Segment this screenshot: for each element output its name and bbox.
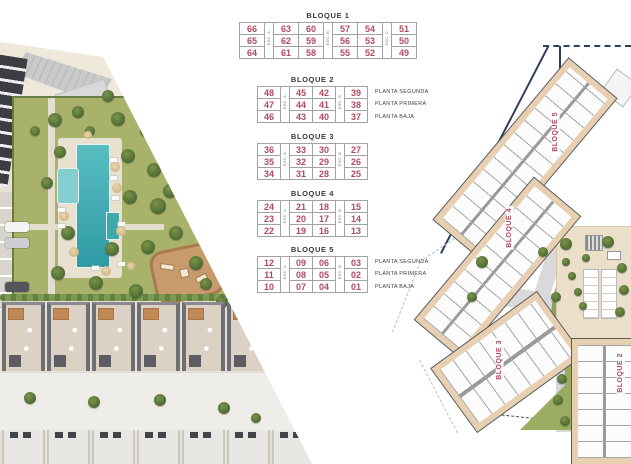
- unit-number-table: 66ESC. A6360ESC. B5754ESC. C516562595653…: [239, 22, 417, 59]
- unit-number-cell: 14: [345, 213, 368, 225]
- parasol-icon: [101, 266, 111, 276]
- palm-tree-icon: [111, 112, 125, 126]
- palm-tree-icon: [189, 256, 203, 270]
- unit-number-cell: 24: [258, 201, 281, 213]
- bloque-block-5: BLOQUE 512ESC. A0906ESC. B03110805021007…: [257, 245, 429, 293]
- sun-lounger: [58, 224, 65, 228]
- unit-number-cell: 04: [313, 281, 336, 293]
- palm-tree-icon: [163, 184, 177, 198]
- townhouse-roof: [2, 430, 45, 464]
- sun-lounger: [110, 158, 117, 162]
- townhouse-roof-terrace: [182, 302, 225, 371]
- car: [5, 282, 29, 292]
- unit-number-cell: 07: [290, 281, 313, 293]
- unit-number-cell: 19: [290, 225, 313, 237]
- planta-label: PLANTA SEGUNDA: [375, 89, 429, 95]
- unit-number-cell: 20: [290, 213, 313, 225]
- palm-tree-icon: [51, 266, 65, 280]
- unit-number-cell: 12: [258, 257, 281, 269]
- unit-number-cell: 22: [258, 225, 281, 237]
- car: [5, 238, 29, 248]
- tree-icon: [602, 236, 614, 248]
- sun-lounger: [112, 196, 119, 200]
- unit-number-cell: 17: [313, 213, 336, 225]
- sun-lounger: [92, 266, 99, 270]
- unit-number-cell: 51: [392, 23, 417, 35]
- palm-tree-icon: [54, 146, 66, 158]
- townhouse-roof: [92, 430, 135, 464]
- sun-lounger: [118, 262, 125, 266]
- unit-number-cell: 59: [299, 35, 324, 47]
- unit-number-cell: 16: [313, 225, 336, 237]
- palm-tree-icon: [141, 240, 155, 254]
- plan-label-bloque-3: BLOQUE 3: [496, 338, 504, 382]
- unit-number-cell: 01: [345, 281, 368, 293]
- townhouse-roof: [227, 430, 270, 464]
- tree-icon: [538, 247, 548, 257]
- unit-number-cell: 41: [313, 99, 336, 111]
- site-boundary-dashed: [543, 45, 631, 47]
- palm-tree-icon: [140, 125, 152, 137]
- palm-tree-icon: [88, 396, 100, 408]
- palm-tree-icon: [166, 142, 178, 154]
- unit-number-table: 24ESC. A2118ESC. B152320171422191613: [257, 200, 368, 237]
- sun-lounger: [58, 208, 65, 212]
- tree-icon: [562, 258, 570, 266]
- townhouse-roof-terrace: [92, 302, 135, 371]
- unit-number-table: 36ESC. A3330ESC. B273532292634312825: [257, 143, 368, 180]
- tree-icon: [568, 272, 576, 280]
- unit-number-table: 48ESC. A4542ESC. B394744413846434037: [257, 86, 368, 123]
- unit-number-cell: 55: [333, 47, 358, 59]
- unit-number-cell: 26: [345, 156, 368, 168]
- play-equipment: [161, 264, 173, 270]
- palm-tree-icon: [129, 284, 143, 298]
- planta-label: PLANTA PRIMERA: [375, 271, 429, 277]
- tree-icon: [617, 263, 627, 273]
- unit-number-cell: 31: [290, 168, 313, 180]
- tree-icon: [574, 288, 582, 296]
- unit-number-cell: 57: [333, 23, 358, 35]
- bloque-title: BLOQUE 1: [306, 11, 349, 20]
- unit-number-cell: 09: [290, 257, 313, 269]
- planta-label: PLANTA BAJA: [375, 114, 429, 120]
- palm-tree-icon: [48, 113, 62, 127]
- palm-tree-icon: [24, 392, 36, 404]
- palm-tree-icon: [180, 147, 192, 159]
- unit-number-cell: 43: [290, 111, 313, 123]
- bloque-block-1: BLOQUE 166ESC. A6360ESC. B5754ESC. C5165…: [239, 11, 417, 59]
- tree-icon: [615, 307, 625, 317]
- unit-number-cell: 36: [258, 144, 281, 156]
- sun-lounger: [118, 222, 125, 226]
- staircase-label: ESC. B: [338, 152, 342, 166]
- unit-number-cell: 30: [313, 144, 336, 156]
- bloque-title: BLOQUE 5: [291, 245, 334, 254]
- unit-number-cell: 53: [358, 35, 383, 47]
- palm-tree-icon: [121, 149, 135, 163]
- unit-number-cell: 49: [392, 47, 417, 59]
- unit-number-cell: 52: [358, 47, 383, 59]
- parasol-icon: [59, 211, 69, 221]
- parasol-icon: [127, 262, 135, 270]
- unit-number-cell: 54: [358, 23, 383, 35]
- unit-number-cell: 40: [313, 111, 336, 123]
- bloque-block-4: BLOQUE 424ESC. A2118ESC. B15232017142219…: [257, 189, 368, 237]
- unit-number-cell: 21: [290, 201, 313, 213]
- unit-number-cell: 15: [345, 201, 368, 213]
- unit-number-cell: 34: [258, 168, 281, 180]
- palm-tree-icon: [150, 198, 166, 214]
- parasol-icon: [110, 162, 120, 172]
- staircase-label: ESC. B: [338, 209, 342, 223]
- townhouse-roof-terrace: [47, 302, 90, 371]
- palm-tree-icon: [218, 402, 230, 414]
- parasol-icon: [112, 183, 122, 193]
- tree-icon: [582, 254, 590, 262]
- unit-number-cell: 11: [258, 269, 281, 281]
- kids-pool: [57, 168, 79, 204]
- palm-tree-icon: [123, 190, 137, 204]
- staircase-label: ESC. C: [385, 31, 389, 46]
- staircase-label: ESC. A: [267, 31, 271, 45]
- tree-icon: [553, 395, 563, 405]
- unit-number-cell: 37: [345, 111, 368, 123]
- unit-number-cell: 25: [345, 168, 368, 180]
- unit-number-cell: 18: [313, 201, 336, 213]
- staircase-label: ESC. A: [283, 152, 287, 166]
- palm-tree-icon: [169, 226, 183, 240]
- tree-icon: [551, 292, 561, 302]
- plan-label-bloque-2: BLOQUE 2: [617, 351, 625, 395]
- unit-number-cell: 66: [240, 23, 265, 35]
- unit-number-cell: 02: [345, 269, 368, 281]
- car: [5, 222, 29, 232]
- pergola-roof: [585, 235, 603, 251]
- staircase-label: ESC. A: [283, 265, 287, 279]
- unit-number-cell: 08: [290, 269, 313, 281]
- unit-number-cell: 44: [290, 99, 313, 111]
- bloque-block-2: BLOQUE 248ESC. A4542ESC. B39474441384643…: [257, 75, 429, 123]
- parasol-icon: [116, 226, 126, 236]
- tree-icon: [560, 238, 572, 250]
- unit-number-cell: 38: [345, 99, 368, 111]
- parking-row: [583, 269, 599, 319]
- unit-number-cell: 48: [258, 87, 281, 99]
- unit-number-table: 12ESC. A0906ESC. B031108050210070401: [257, 256, 368, 293]
- bloque-block-3: BLOQUE 336ESC. A3330ESC. B27353229263431…: [257, 132, 368, 180]
- unit-number-cell: 65: [240, 35, 265, 47]
- unit-number-cell: 06: [313, 257, 336, 269]
- palm-tree-icon: [134, 93, 146, 105]
- unit-number-cell: 32: [290, 156, 313, 168]
- unit-number-cell: 47: [258, 99, 281, 111]
- unit-number-cell: 23: [258, 213, 281, 225]
- palm-tree-icon: [154, 394, 166, 406]
- unit-number-cell: 33: [290, 144, 313, 156]
- palm-tree-icon: [105, 242, 119, 256]
- unit-number-cell: 35: [258, 156, 281, 168]
- townhouse-roof-terrace: [137, 302, 180, 371]
- unit-number-cell: 27: [345, 144, 368, 156]
- palm-tree-icon: [89, 276, 103, 290]
- tree-icon: [467, 292, 477, 302]
- townhouse-roof: [182, 430, 225, 464]
- unit-number-cell: 42: [313, 87, 336, 99]
- parasol-icon: [84, 131, 92, 139]
- staircase-label: ESC. A: [283, 95, 287, 109]
- unit-number-cell: 63: [274, 23, 299, 35]
- unit-number-cell: 28: [313, 168, 336, 180]
- unit-number-cell: 62: [274, 35, 299, 47]
- unit-number-cell: 46: [258, 111, 281, 123]
- townhouse-roof: [137, 430, 180, 464]
- sun-lounger: [110, 176, 117, 180]
- palm-tree-icon: [30, 126, 40, 136]
- plan-label-bloque-4: BLOQUE 4: [506, 206, 514, 250]
- unit-number-cell: 29: [313, 156, 336, 168]
- unit-number-cell: 10: [258, 281, 281, 293]
- townhouse-roof: [47, 430, 90, 464]
- palm-tree-icon: [200, 278, 212, 290]
- bloque-title: BLOQUE 4: [291, 189, 334, 198]
- planta-label: PLANTA BAJA: [375, 284, 429, 290]
- staircase-label: ESC. B: [326, 31, 330, 45]
- tree-icon: [557, 374, 567, 384]
- plan-page: { "legend_tables": { "bloques": [ { "tit…: [0, 0, 631, 464]
- planta-label: PLANTA PRIMERA: [375, 101, 429, 107]
- townhouse-roof-terrace: [2, 302, 45, 371]
- play-equipment: [180, 269, 188, 277]
- unit-number-cell: 64: [240, 47, 265, 59]
- townhouse-roof: [272, 430, 315, 464]
- parasol-icon: [69, 247, 79, 257]
- staircase-label: ESC. B: [338, 95, 342, 109]
- unit-number-cell: 03: [345, 257, 368, 269]
- unit-number-cell: 61: [274, 47, 299, 59]
- palm-tree-icon: [147, 163, 161, 177]
- tree-icon: [619, 285, 629, 295]
- palm-tree-icon: [251, 413, 261, 423]
- unit-number-cell: 45: [290, 87, 313, 99]
- unit-number-cell: 39: [345, 87, 368, 99]
- palm-tree-icon: [102, 90, 114, 102]
- unit-number-cell: 13: [345, 225, 368, 237]
- bloque-title: BLOQUE 3: [291, 132, 334, 141]
- bloque-title: BLOQUE 2: [291, 75, 334, 84]
- parking-sign: [607, 251, 621, 260]
- unit-number-cell: 60: [299, 23, 324, 35]
- staircase-label: ESC. B: [338, 265, 342, 279]
- tree-icon: [560, 416, 570, 426]
- unit-number-cell: 05: [313, 269, 336, 281]
- palm-tree-icon: [41, 177, 53, 189]
- palm-tree-icon: [72, 106, 84, 118]
- garden-path: [48, 98, 55, 294]
- townhouse-roof-terrace: [227, 302, 270, 371]
- unit-number-cell: 58: [299, 47, 324, 59]
- plan-label-bloque-5: BLOQUE 5: [552, 110, 560, 154]
- tree-icon: [476, 256, 488, 268]
- tree-icon: [579, 302, 587, 310]
- unit-number-cell: 50: [392, 35, 417, 47]
- palm-tree-icon: [61, 226, 75, 240]
- staircase-label: ESC. A: [283, 209, 287, 223]
- unit-number-cell: 56: [333, 35, 358, 47]
